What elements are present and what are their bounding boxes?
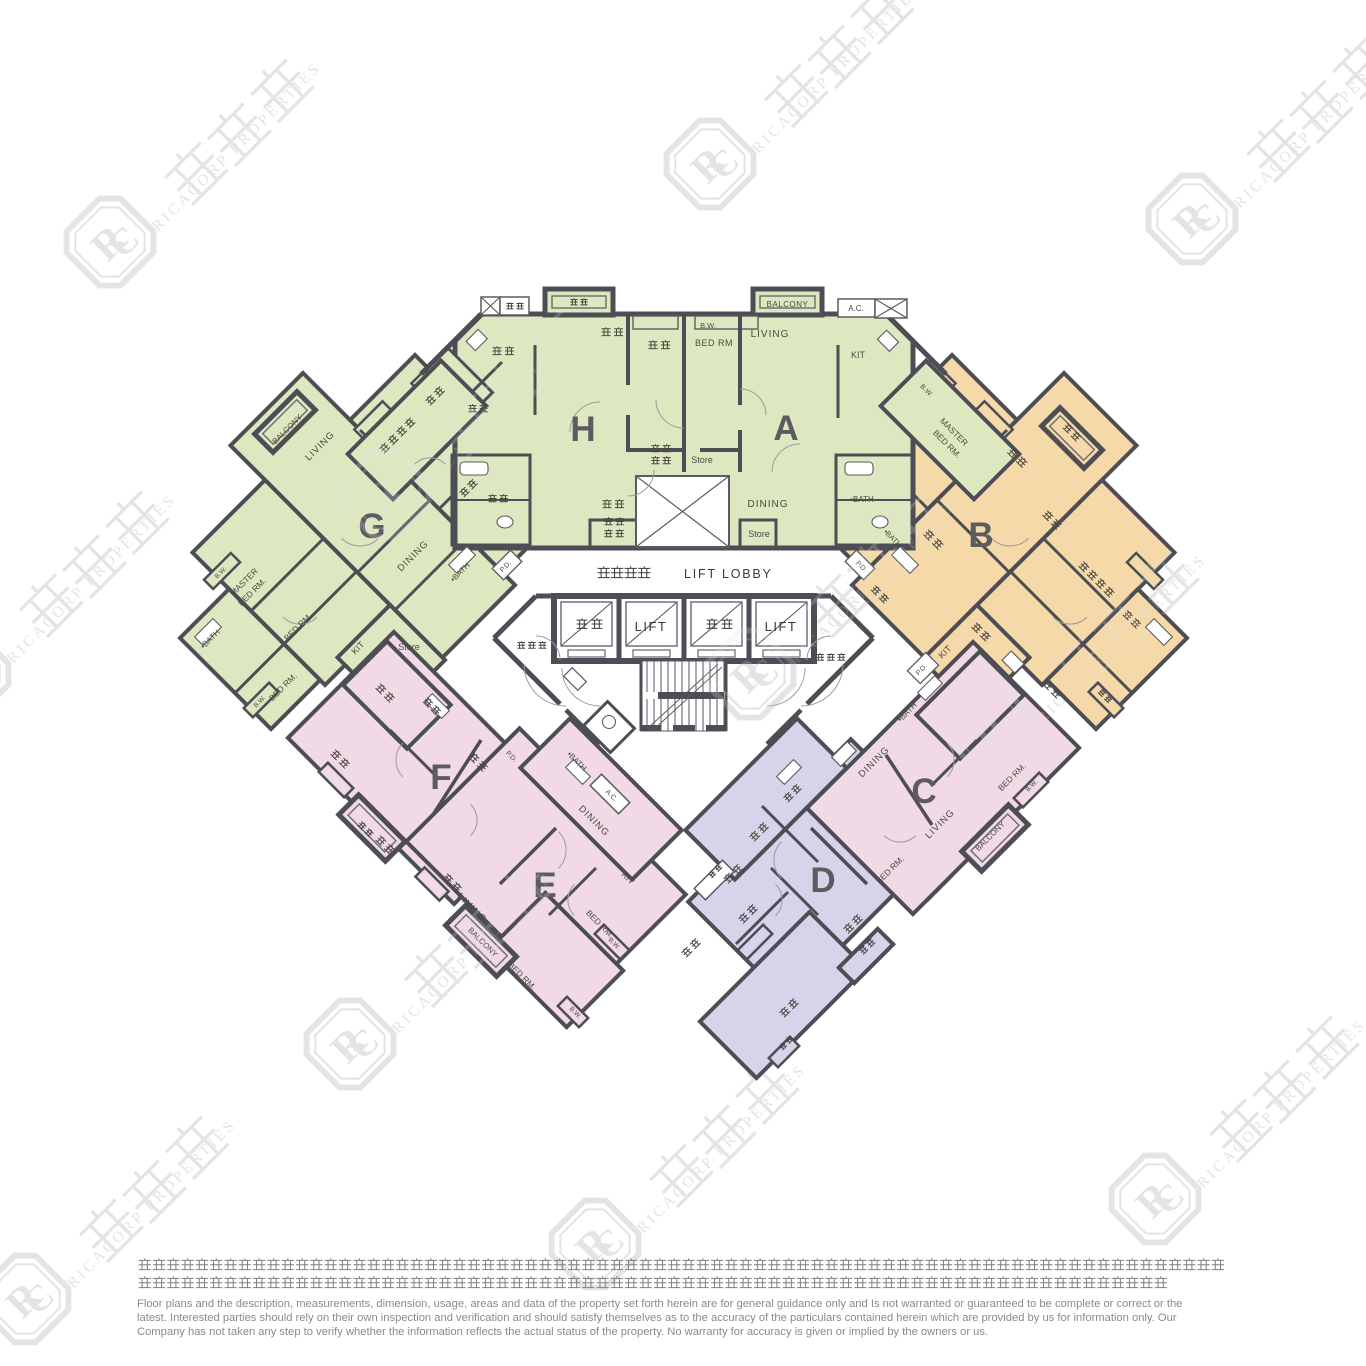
- svg-text:BALCONY: BALCONY: [767, 300, 809, 309]
- svg-text:F: F: [430, 758, 451, 797]
- svg-text:Store: Store: [748, 529, 770, 539]
- svg-text:Floor plans and the descriptio: Floor plans and the description, measure…: [137, 1298, 1182, 1310]
- svg-text:latest. Interested parties sho: latest. Interested parties should rely o…: [137, 1312, 1177, 1324]
- svg-text:Store: Store: [691, 455, 713, 465]
- svg-text:KIT: KIT: [851, 350, 866, 360]
- svg-text:•BATH: •BATH: [850, 495, 874, 504]
- svg-text:Company has not taken any step: Company has not taken any step to verify…: [137, 1326, 988, 1338]
- svg-text:B.W.: B.W.: [700, 321, 716, 330]
- svg-text:H: H: [570, 410, 595, 449]
- svg-text:LIVING: LIVING: [751, 329, 790, 340]
- svg-text:DINING: DINING: [748, 499, 789, 510]
- svg-text:B: B: [968, 516, 993, 555]
- svg-text:A: A: [773, 409, 798, 448]
- svg-text:D: D: [810, 861, 835, 900]
- svg-text:LIFT: LIFT: [635, 619, 668, 634]
- svg-text:LIFT: LIFT: [765, 619, 798, 634]
- svg-text:BED RM: BED RM: [695, 338, 733, 348]
- svg-text:LIFT LOBBY: LIFT LOBBY: [684, 567, 773, 581]
- svg-text:A.C.: A.C.: [848, 304, 864, 313]
- svg-text:Store: Store: [398, 642, 420, 652]
- svg-text:C: C: [911, 772, 936, 811]
